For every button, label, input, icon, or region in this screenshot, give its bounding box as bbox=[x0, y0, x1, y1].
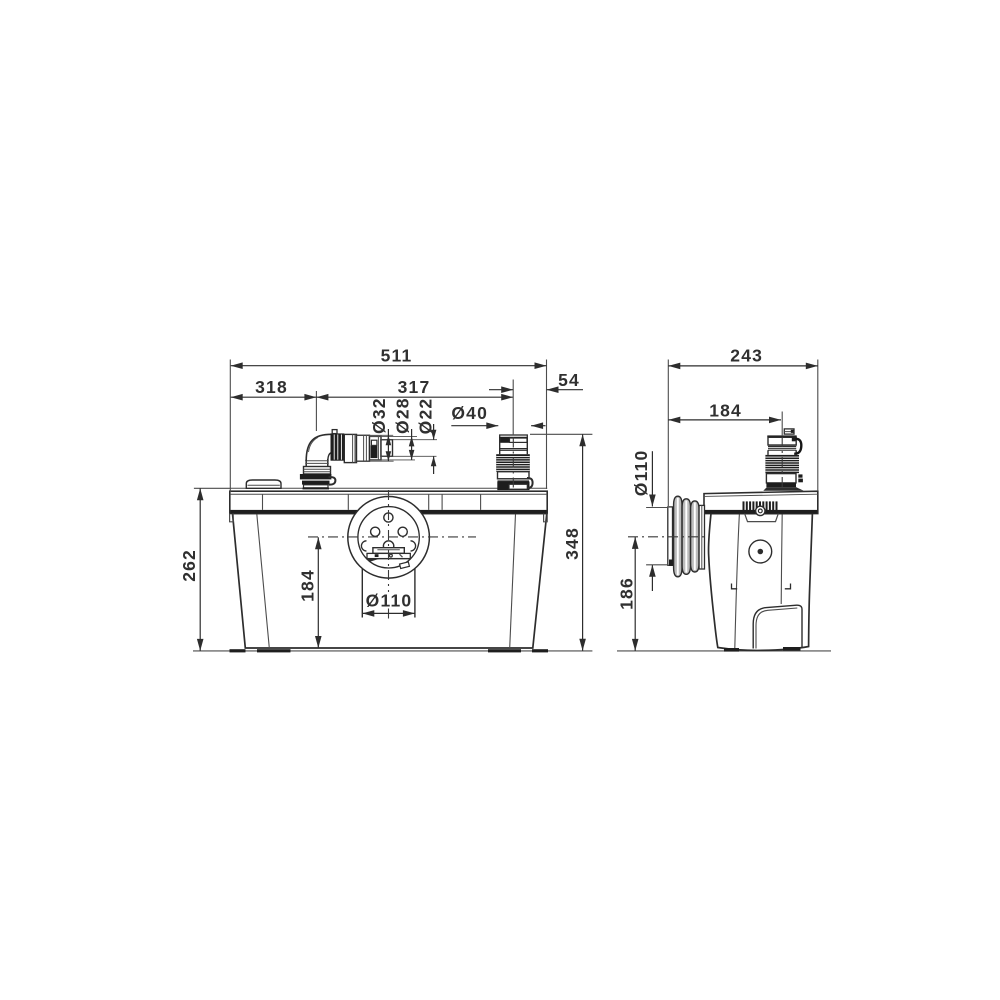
svg-text:318: 318 bbox=[255, 377, 288, 397]
svg-text:Ø32: Ø32 bbox=[369, 397, 389, 434]
svg-text:511: 511 bbox=[381, 346, 413, 366]
svg-text:Ø22: Ø22 bbox=[415, 398, 435, 435]
svg-text:262: 262 bbox=[179, 549, 199, 582]
svg-text:Ø28: Ø28 bbox=[393, 397, 413, 434]
svg-text:243: 243 bbox=[730, 346, 763, 366]
svg-text:184: 184 bbox=[709, 400, 742, 420]
svg-text:Ø110: Ø110 bbox=[631, 450, 651, 497]
svg-text:Ø110: Ø110 bbox=[366, 590, 413, 610]
svg-text:54: 54 bbox=[558, 370, 580, 390]
svg-text:Ø40: Ø40 bbox=[451, 403, 488, 423]
svg-text:317: 317 bbox=[398, 377, 431, 397]
svg-text:348: 348 bbox=[562, 527, 582, 560]
svg-text:184: 184 bbox=[297, 569, 317, 602]
svg-text:186: 186 bbox=[617, 577, 637, 610]
